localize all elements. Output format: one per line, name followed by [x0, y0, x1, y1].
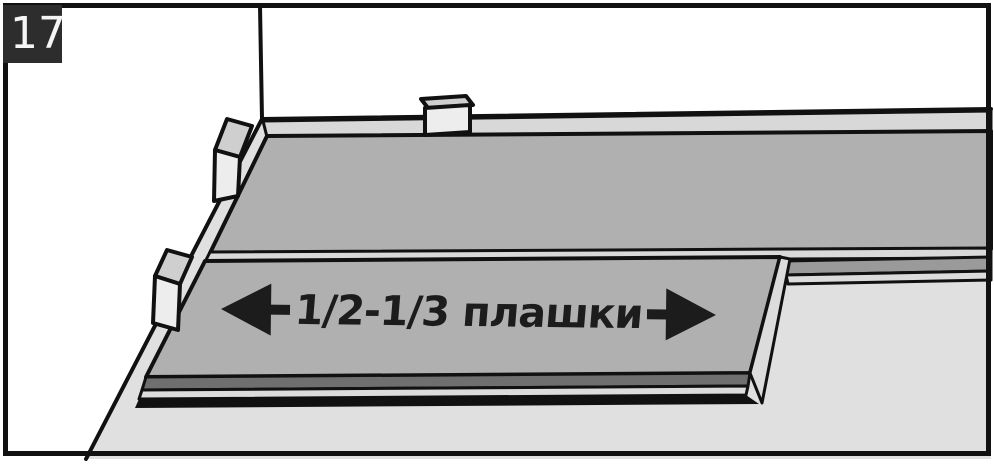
- left-arrow-icon: [219, 279, 292, 340]
- annotation: 1/2-1/3 плашки: [219, 278, 717, 346]
- wall-corner-line: [260, 6, 262, 119]
- flooring-diagram: [0, 0, 994, 464]
- step-badge: 17: [3, 5, 62, 63]
- annotation-label: 1/2-1/3 плашки: [293, 286, 644, 338]
- spacer-back: [421, 96, 473, 135]
- plank-row-1: [210, 131, 991, 253]
- instruction-panel: 17 1/2-1/3 плашки: [0, 0, 994, 464]
- right-arrow-icon: [646, 284, 719, 345]
- spacer-left-upper-front: [214, 150, 240, 201]
- spacer-left-lower-front: [153, 276, 180, 330]
- step-number: 17: [10, 12, 66, 56]
- spacer-back-front: [425, 105, 470, 135]
- plank-row-1-tongue-edge: [786, 271, 991, 284]
